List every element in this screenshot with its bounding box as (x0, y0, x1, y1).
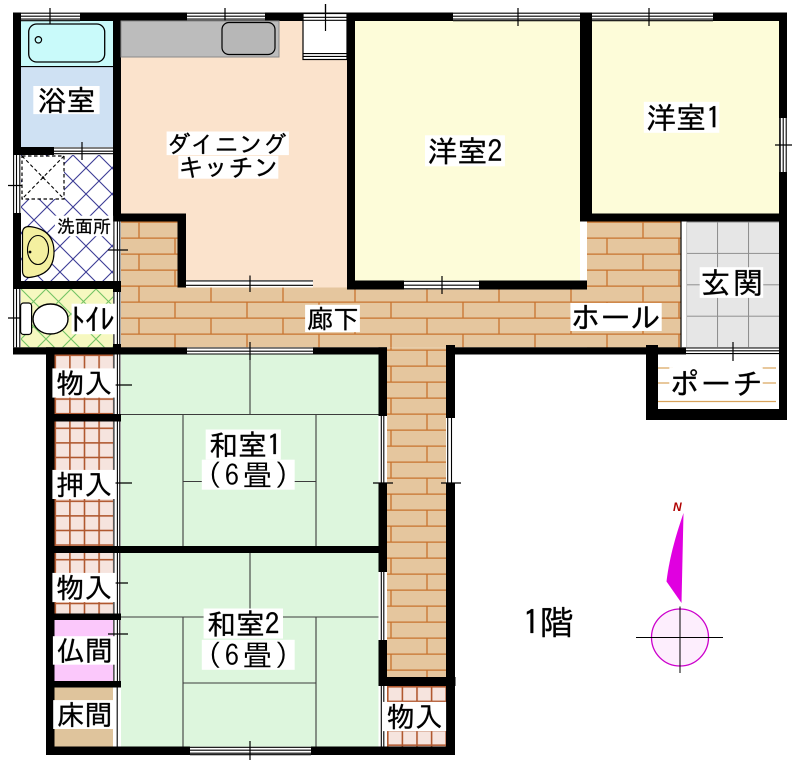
svg-text:N: N (673, 500, 682, 514)
